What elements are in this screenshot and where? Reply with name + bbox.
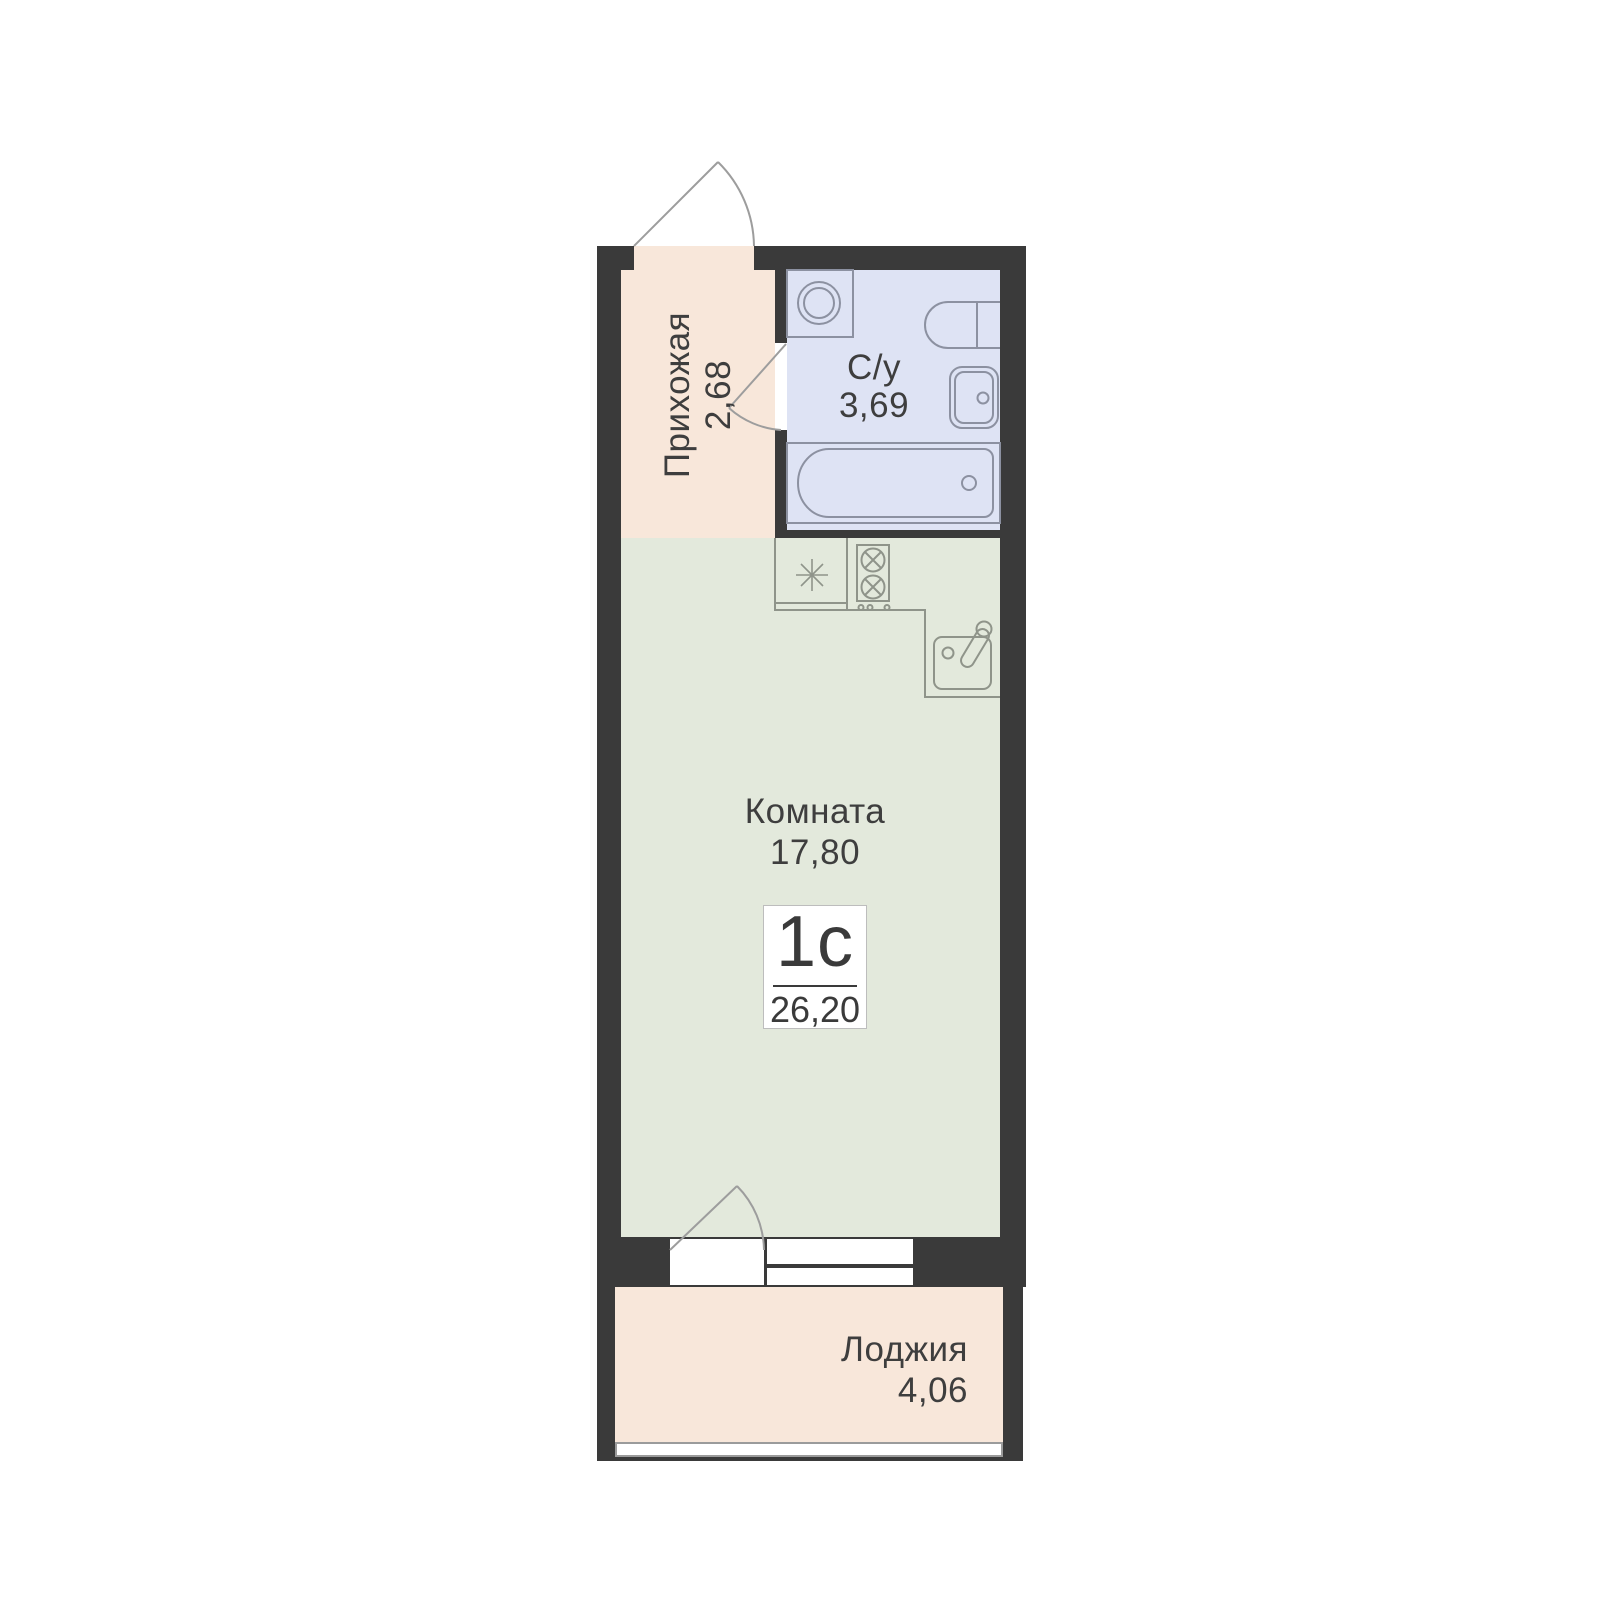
entry-doorway-gap bbox=[634, 246, 754, 272]
wall-loggia-left bbox=[597, 1287, 615, 1461]
room-area bbox=[621, 538, 1000, 1237]
wall-right bbox=[1000, 270, 1026, 1237]
room-label: Комната 17,80 bbox=[745, 791, 886, 873]
apartment-total-area: 26,20 bbox=[770, 992, 860, 1028]
wall-bathroom-bottom bbox=[775, 530, 1000, 538]
balcony-door-opening bbox=[670, 1239, 764, 1285]
wall-top-left bbox=[597, 246, 634, 270]
bathroom-name: С/у bbox=[847, 348, 901, 387]
wall-top-right bbox=[754, 246, 1026, 270]
apartment-type-badge: 1с 26,20 bbox=[763, 905, 867, 1029]
wall-loggia-right bbox=[1003, 1287, 1023, 1461]
room-name: Комната bbox=[745, 792, 886, 831]
apartment-type-label: 1с bbox=[776, 906, 854, 978]
loggia-label: Лоджия 4,06 bbox=[841, 1329, 968, 1411]
hallway-label: Прихожая 2,68 bbox=[657, 312, 739, 478]
loggia-glazing bbox=[616, 1443, 1002, 1456]
hallway-area-value: 2,68 bbox=[698, 312, 739, 478]
entry-door-swing bbox=[634, 162, 754, 246]
window-inner-pane bbox=[767, 1268, 913, 1285]
loggia-area-value: 4,06 bbox=[841, 1370, 968, 1411]
wall-hallway-bathroom-upper bbox=[775, 270, 787, 343]
badge-divider-line bbox=[773, 985, 857, 987]
hallway-name: Прихожая bbox=[658, 312, 697, 478]
bathroom-area-value: 3,69 bbox=[839, 387, 909, 425]
wall-hallway-bathroom-lower bbox=[775, 430, 787, 538]
loggia-name: Лоджия bbox=[841, 1330, 968, 1369]
window-outer-pane bbox=[767, 1239, 913, 1264]
wall-left bbox=[597, 270, 621, 1237]
floor-plan: Прихожая 2,68 С/у 3,69 Комната 17,80 Лод… bbox=[0, 0, 1620, 1620]
bathroom-label: С/у 3,69 bbox=[839, 349, 909, 425]
room-area-value: 17,80 bbox=[745, 832, 886, 873]
